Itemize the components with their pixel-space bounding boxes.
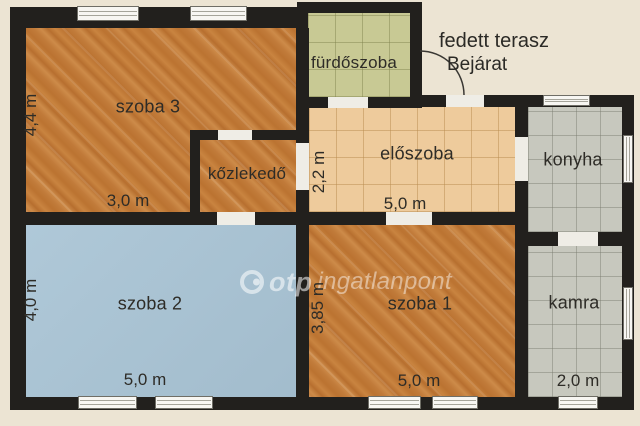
window-pane-lines [157, 400, 211, 404]
room-label-szoba-1: szoba 1 [388, 294, 452, 315]
terrace-label: fedett terasz [439, 30, 549, 53]
dimension-label-2: 2,2 m [309, 151, 329, 194]
wall-bath-right-wall [410, 2, 422, 107]
szoba2-window-1 [78, 396, 137, 409]
window-pane-lines [545, 99, 588, 103]
dimension-label-1: 3,0 m [107, 191, 150, 211]
konyha-kamra-door [558, 232, 598, 246]
window-pane-lines [626, 289, 630, 338]
window-pane-lines [370, 400, 419, 404]
wall-entrance-wall [410, 95, 634, 107]
room-label-konyha: konyha [543, 150, 602, 171]
kamra-right-window [623, 287, 633, 340]
room-label-kamra: kamra [548, 293, 599, 314]
room-label-furdoszoba: fürdőszoba [311, 53, 397, 73]
dimension-label-6: 5,0 m [124, 370, 167, 390]
kozlekedo-bottom-door [217, 212, 255, 225]
room-label-kozlekedo: kőzlekedő [208, 164, 286, 184]
dimension-label-5: 3,85 m [308, 282, 328, 334]
room-label-szoba-2: szoba 2 [118, 294, 182, 315]
kozlekedo-right-door [296, 143, 309, 190]
kamra-bottom-window [558, 396, 598, 409]
szoba3-window-2 [190, 6, 247, 21]
kozlekedo-top-door [218, 130, 252, 140]
window-pane-lines [560, 400, 596, 404]
room-label-eloszoba: előszoba [380, 144, 454, 165]
konyha-top-window [543, 95, 590, 106]
window-pane-lines [434, 400, 476, 404]
window-pane-lines [626, 137, 630, 181]
dimension-label-0: 4,4 m [21, 94, 41, 137]
wall-hall-left-wall [190, 130, 200, 225]
wall-top-wall [10, 7, 308, 28]
eloszoba-konyha-door [515, 137, 528, 181]
dimension-label-3: 5,0 m [384, 194, 427, 214]
szoba1-window-2 [432, 396, 478, 409]
szoba1-window-1 [368, 396, 421, 409]
floor-plan: fedett terasz Bejárat otp ingatlanpont s… [0, 0, 640, 426]
szoba3-window-1 [77, 6, 139, 21]
dimension-label-4: 4,0 m [21, 279, 41, 322]
szoba2-window-2 [155, 396, 213, 409]
entrance-door [446, 95, 484, 107]
window-pane-lines [192, 11, 245, 16]
dimension-label-7: 5,0 m [398, 371, 441, 391]
wall-bath-top-wall [297, 2, 422, 13]
dimension-label-8: 2,0 m [557, 371, 600, 391]
konyha-right-window [623, 135, 633, 183]
wall-left-wall [10, 7, 26, 410]
furdoszoba-door [328, 97, 368, 108]
entrance-label: Bejárat [447, 54, 507, 76]
wall-middle-horizontal-wall [10, 212, 528, 225]
room-label-szoba-3: szoba 3 [116, 97, 180, 118]
window-pane-lines [79, 11, 137, 16]
window-pane-lines [80, 400, 135, 404]
